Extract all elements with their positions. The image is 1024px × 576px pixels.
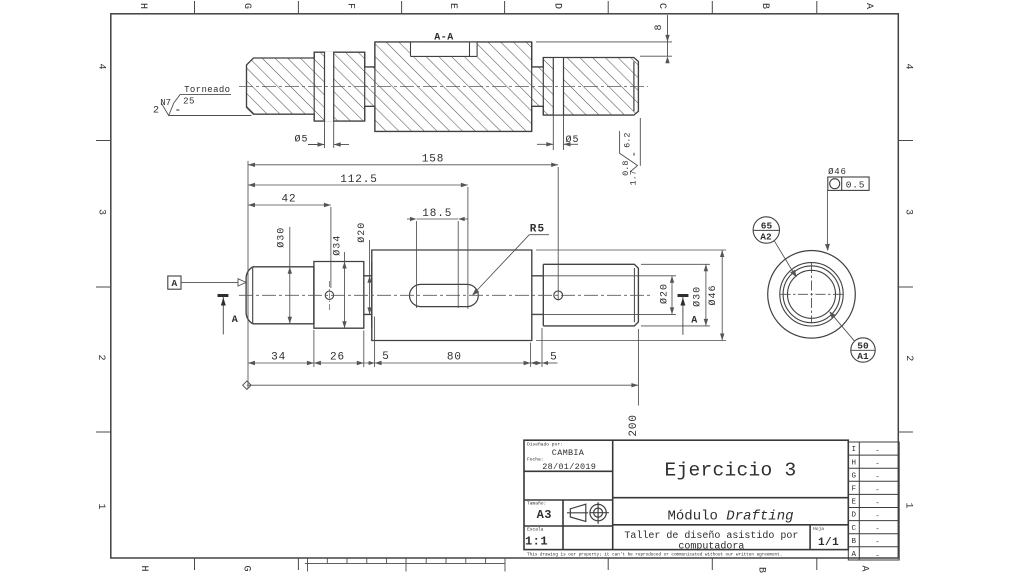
svg-text:0.5: 0.5 xyxy=(846,180,866,191)
svg-text:E: E xyxy=(852,499,857,507)
svg-text:Ejercicio 3: Ejercicio 3 xyxy=(664,460,796,482)
svg-text:Ø20: Ø20 xyxy=(356,222,368,243)
svg-text:Taller de diseño asistido por: Taller de diseño asistido por xyxy=(624,530,798,542)
svg-text:Ø30: Ø30 xyxy=(276,227,288,248)
svg-text:B: B xyxy=(759,3,770,9)
svg-text:G: G xyxy=(241,565,252,571)
svg-text:Ø30: Ø30 xyxy=(692,286,704,307)
svg-text:H: H xyxy=(137,3,148,9)
svg-text:F: F xyxy=(345,3,356,9)
svg-text:=: = xyxy=(631,152,638,156)
svg-text:G: G xyxy=(852,472,857,480)
svg-text:3: 3 xyxy=(903,209,914,215)
svg-text:-: - xyxy=(875,552,880,560)
svg-text:-: - xyxy=(875,500,880,508)
svg-text:42: 42 xyxy=(281,194,296,206)
svg-text:5: 5 xyxy=(382,351,390,363)
svg-text:112.5: 112.5 xyxy=(340,174,378,186)
svg-text:34: 34 xyxy=(271,351,286,363)
svg-text:80: 80 xyxy=(447,352,462,364)
svg-text:A: A xyxy=(859,565,870,571)
svg-text:Torneado: Torneado xyxy=(184,85,230,95)
svg-text:computadora: computadora xyxy=(678,540,744,552)
svg-text:-: - xyxy=(875,513,880,521)
svg-text:5: 5 xyxy=(550,351,558,363)
svg-text:4: 4 xyxy=(96,63,107,69)
svg-text:=: = xyxy=(176,107,180,114)
svg-text:1: 1 xyxy=(903,502,914,508)
svg-text:Fecha:: Fecha: xyxy=(527,456,544,462)
svg-text:4: 4 xyxy=(903,63,914,69)
svg-text:Ø5: Ø5 xyxy=(565,134,579,146)
svg-text:3: 3 xyxy=(96,209,107,215)
svg-text:C: C xyxy=(656,3,667,9)
svg-text:Hoja: Hoja xyxy=(813,526,824,532)
svg-text:N7: N7 xyxy=(160,98,171,108)
svg-text:A: A xyxy=(172,278,178,289)
svg-text:Tamaño:: Tamaño: xyxy=(527,501,546,507)
svg-text:A: A xyxy=(863,3,874,9)
svg-text:A1: A1 xyxy=(857,351,869,362)
svg-text:18.5: 18.5 xyxy=(422,208,452,220)
svg-text:Ø5: Ø5 xyxy=(294,134,308,146)
svg-text:A2: A2 xyxy=(760,232,772,243)
svg-text:28/01/2019: 28/01/2019 xyxy=(542,462,596,472)
svg-text:Escala: Escala xyxy=(527,527,544,533)
svg-text:6.2: 6.2 xyxy=(622,133,632,148)
svg-text:26: 26 xyxy=(330,351,345,363)
svg-text:G: G xyxy=(241,3,252,9)
svg-text:A: A xyxy=(691,316,697,327)
svg-text:2: 2 xyxy=(153,106,159,117)
svg-text:200: 200 xyxy=(628,414,640,437)
svg-text:A: A xyxy=(852,551,857,559)
svg-text:Ø20: Ø20 xyxy=(658,283,670,304)
svg-text:A: A xyxy=(232,315,238,326)
svg-text:25: 25 xyxy=(183,97,195,107)
svg-text:-: - xyxy=(875,461,880,469)
svg-text:D: D xyxy=(852,512,857,520)
svg-text:E: E xyxy=(447,3,458,9)
svg-text:Ø34: Ø34 xyxy=(332,235,344,256)
svg-text:Ø46: Ø46 xyxy=(828,167,847,177)
svg-text:50: 50 xyxy=(857,340,869,351)
svg-text:Diseñado por:: Diseñado por: xyxy=(527,442,563,448)
svg-text:-: - xyxy=(875,539,880,547)
svg-text:C: C xyxy=(852,525,857,533)
svg-text:2: 2 xyxy=(95,354,106,360)
svg-text:8: 8 xyxy=(654,24,665,30)
svg-text:H: H xyxy=(138,565,149,571)
svg-text:R5: R5 xyxy=(530,224,546,236)
svg-text:2: 2 xyxy=(903,355,914,361)
svg-text:A3: A3 xyxy=(537,508,552,522)
svg-text:1.7: 1.7 xyxy=(629,170,639,185)
svg-text:158: 158 xyxy=(422,154,445,166)
svg-text:-: - xyxy=(875,487,880,495)
svg-text:1: 1 xyxy=(95,503,106,509)
svg-text:-: - xyxy=(875,448,880,456)
svg-text:This drawing is our property;: This drawing is our property; it can't b… xyxy=(527,552,782,557)
svg-text:-: - xyxy=(875,474,880,482)
svg-text:1:1: 1:1 xyxy=(525,535,548,549)
svg-text:F: F xyxy=(852,486,857,494)
svg-text:B: B xyxy=(756,567,767,573)
svg-text:65: 65 xyxy=(761,220,773,231)
svg-text:I: I xyxy=(852,446,857,454)
svg-text:-: - xyxy=(875,526,880,534)
svg-text:1/1: 1/1 xyxy=(818,537,839,549)
svg-text:B: B xyxy=(852,538,857,546)
svg-text:CAMBIA: CAMBIA xyxy=(552,448,585,458)
svg-text:A-A: A-A xyxy=(434,32,454,43)
svg-text:Módulo Drafting: Módulo Drafting xyxy=(667,509,793,525)
svg-text:H: H xyxy=(852,459,857,467)
svg-text:D: D xyxy=(552,3,563,9)
svg-text:Ø46: Ø46 xyxy=(707,284,719,305)
